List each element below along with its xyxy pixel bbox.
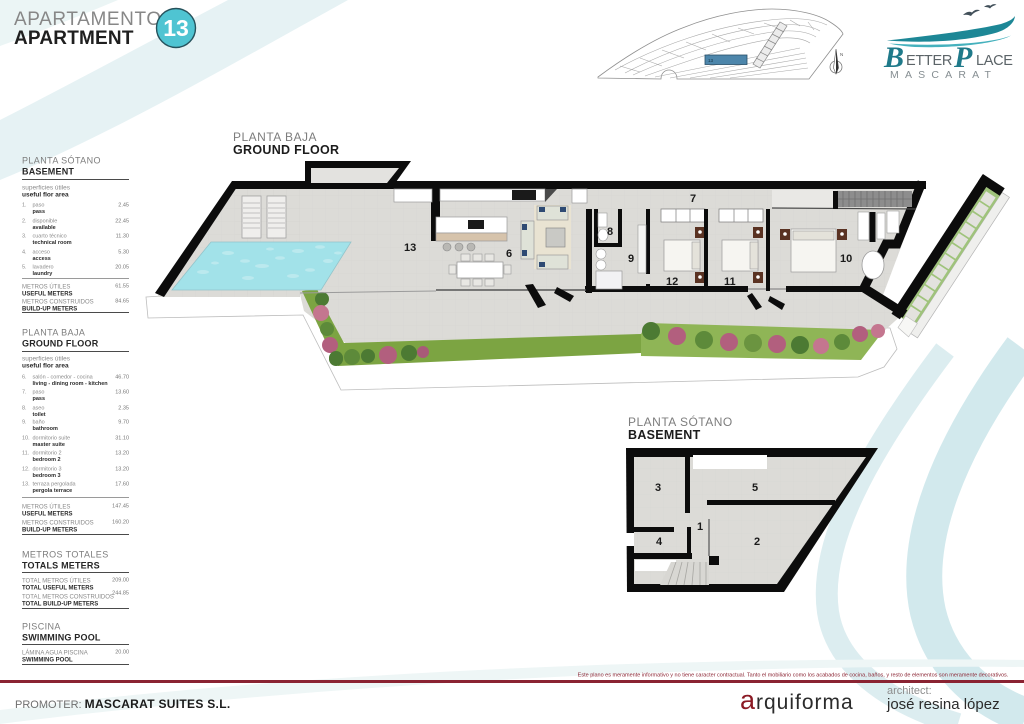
svg-text:N: N — [840, 52, 843, 57]
svg-text:10: 10 — [840, 253, 852, 265]
svg-text:LACE: LACE — [976, 53, 1013, 69]
svg-text:13: 13 — [708, 58, 714, 63]
svg-text:7: 7 — [690, 193, 696, 205]
svg-text:2: 2 — [754, 536, 760, 548]
svg-text:9: 9 — [628, 253, 634, 265]
svg-text:MASCARAT: MASCARAT — [890, 69, 997, 81]
svg-text:12: 12 — [666, 276, 678, 288]
svg-text:1: 1 — [697, 521, 703, 533]
svg-text:11: 11 — [724, 276, 736, 288]
svg-text:3: 3 — [655, 482, 661, 494]
svg-text:6: 6 — [506, 248, 512, 260]
svg-text:13: 13 — [404, 242, 416, 254]
svg-text:ETTER: ETTER — [906, 53, 952, 69]
svg-text:8: 8 — [607, 226, 613, 238]
svg-text:4: 4 — [656, 536, 663, 548]
svg-text:5: 5 — [752, 482, 758, 494]
